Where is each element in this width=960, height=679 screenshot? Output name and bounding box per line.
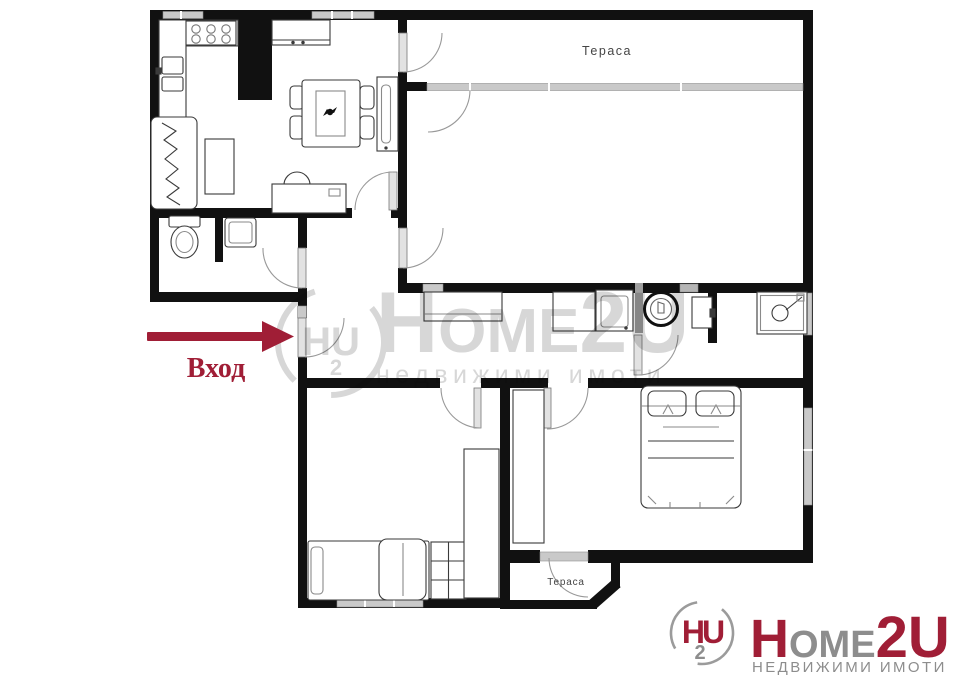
watermark-subtext: недвижими имоти [376,361,666,389]
terrace-top-label: Тераса [582,44,632,58]
single-bed-icon [308,539,429,600]
living-door-arc [355,172,393,210]
bedroom1-door-leaf [474,388,481,428]
terrace-band-door-arc [428,90,470,132]
window-top-left [163,12,203,19]
entrance-arrow-icon [147,332,263,341]
double-bed-icon [641,386,741,508]
wardrobe-icon [464,449,499,598]
sofa-icon [151,117,197,209]
terrace-top-door-arc [403,33,442,72]
entrance-marker: Вход [147,321,294,384]
home2u-logo: HU 2 HOME2U НЕДВИЖИМИ ИМОТИ [658,589,949,676]
window-top-mid [312,12,374,19]
terrace-angled-wall [592,583,617,605]
bigroom-door-arc [403,228,443,268]
chair-icon [360,86,374,109]
entrance-label: Вход [187,353,246,384]
wc-door-arc [263,248,302,288]
desk-icon [272,172,346,213]
sideboard-icon [272,20,330,45]
wc-door-leaf [298,248,306,288]
chair-icon [360,116,374,139]
wardrobe-icon [513,390,544,543]
living-door-leaf [389,172,397,210]
shower-icon [757,292,807,334]
bath-cabinet-icon [692,297,715,328]
terrace-bottom-label: Тераса [547,577,585,588]
window-bedroom1-bottom [337,600,423,607]
bedroom2-door-leaf [544,388,551,428]
window-right-bedroom [804,408,812,505]
entrance-sidelight [298,306,307,318]
bedroom2-door-arc [547,388,588,429]
toilet-icon [169,216,200,258]
floor-plan-drawing: HU 2 HOME2U недвижими имоти Тераса Терас… [0,0,960,679]
logo-subtext: НЕДВИЖИМИ ИМОТИ [752,659,947,676]
dining-table-icon [290,80,374,147]
bigroom-door-leaf [399,228,407,268]
desk-chair-icon [284,172,310,185]
washbasin-icon [225,218,256,247]
logo-emblem-2: 2 [694,642,705,664]
watermark-emblem-sub: 2 [330,355,342,380]
tv-icon [377,77,398,151]
terrace-top-door-leaf [399,33,407,72]
terrace-glazed-band [427,84,803,91]
floor-plan-page: HU 2 HOME2U недвижими имоти Тераса Терас… [0,0,960,679]
grid-cabinet-icon [431,542,466,599]
coffee-table-icon [205,139,234,194]
terrace-bottom-door-glazing [540,552,588,561]
kitchen-hob-icon [186,21,236,45]
